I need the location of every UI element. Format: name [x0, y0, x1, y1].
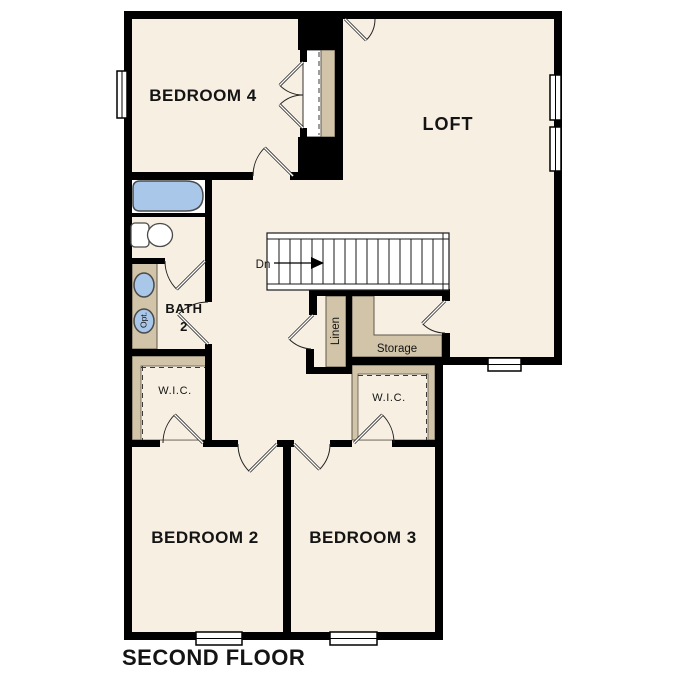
- wall-segment: [554, 11, 562, 365]
- staircase: [267, 233, 449, 290]
- wall-segment: [124, 172, 253, 180]
- floor-plan-page: BEDROOM 4 LOFT BATH 2 W.I.C. W.I.C. BEDR…: [0, 0, 687, 687]
- stairs-dn-label: Dn: [256, 259, 271, 271]
- wic-left-label: W.I.C.: [158, 385, 192, 397]
- floor-title: SECOND FLOOR: [122, 645, 305, 670]
- bedroom4-window: [117, 71, 127, 118]
- bath2-label-line2: 2: [180, 319, 188, 334]
- wall-segment: [306, 367, 352, 374]
- wall-segment: [205, 344, 212, 447]
- wall-segment: [346, 289, 352, 374]
- wall-segment: [203, 440, 238, 447]
- bedroom2-label: BEDROOM 2: [151, 528, 258, 547]
- loft-label: LOFT: [423, 114, 474, 134]
- wall-segment: [124, 632, 443, 640]
- wall-segment: [352, 357, 562, 365]
- bedroom4-label: BEDROOM 4: [149, 86, 257, 105]
- wall-segment: [124, 440, 160, 447]
- bedroom2-window: [196, 632, 242, 645]
- wall-segment: [300, 50, 307, 62]
- wic-right-label: W.I.C.: [372, 392, 406, 404]
- wall-segment: [435, 357, 443, 640]
- wall-segment: [442, 289, 450, 301]
- wall-segment: [392, 440, 443, 447]
- wall-segment: [205, 180, 212, 302]
- loft-window-lower: [550, 127, 561, 171]
- wall-segment: [132, 213, 210, 217]
- wall-segment: [335, 11, 343, 180]
- storage-label: Storage: [377, 343, 417, 355]
- wall-segment: [330, 440, 352, 447]
- wall-segment: [300, 128, 307, 137]
- toilet-bowl: [148, 224, 173, 247]
- loft-bottom-window: [488, 358, 521, 371]
- vanity-sink: [134, 273, 154, 297]
- wall-segment: [309, 289, 317, 315]
- wall-segment: [132, 258, 165, 264]
- wall-segment: [442, 333, 450, 365]
- toilet-tank: [131, 223, 149, 247]
- bedroom3-label: BEDROOM 3: [309, 528, 416, 547]
- linen-label: Linen: [330, 317, 342, 345]
- bath2-label-line1: BATH: [165, 301, 202, 316]
- bathtub: [133, 181, 203, 211]
- bedroom3-window: [330, 632, 377, 645]
- floor-plan-drawing: BEDROOM 4 LOFT BATH 2 W.I.C. W.I.C. BEDR…: [0, 0, 687, 687]
- optional-sink-label: Opt.: [138, 312, 148, 328]
- wall-segment: [124, 349, 212, 356]
- wall-segment: [283, 447, 291, 632]
- closet-shelf: [321, 50, 335, 137]
- wall-segment: [277, 440, 294, 447]
- wic-left-interior: [141, 366, 207, 440]
- loft-window-upper: [550, 75, 561, 120]
